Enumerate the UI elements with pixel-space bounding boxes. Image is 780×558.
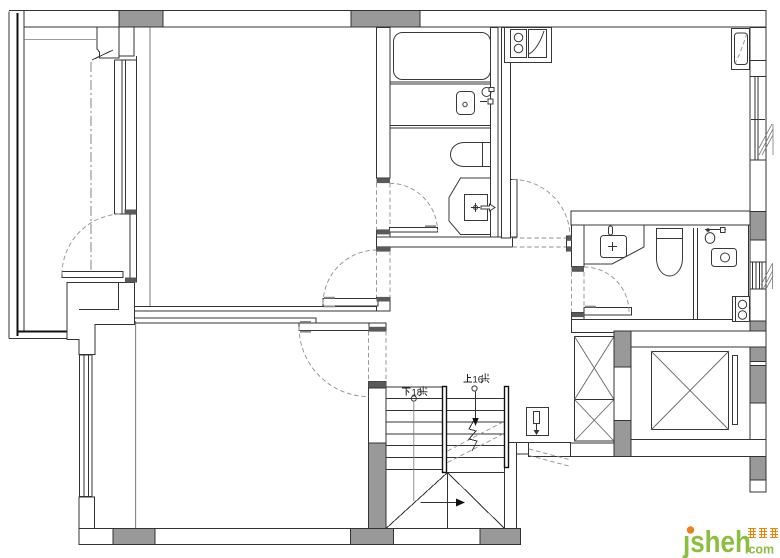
- svg-text:.com: .com: [745, 543, 774, 557]
- svg-text:16: 16: [473, 375, 484, 386]
